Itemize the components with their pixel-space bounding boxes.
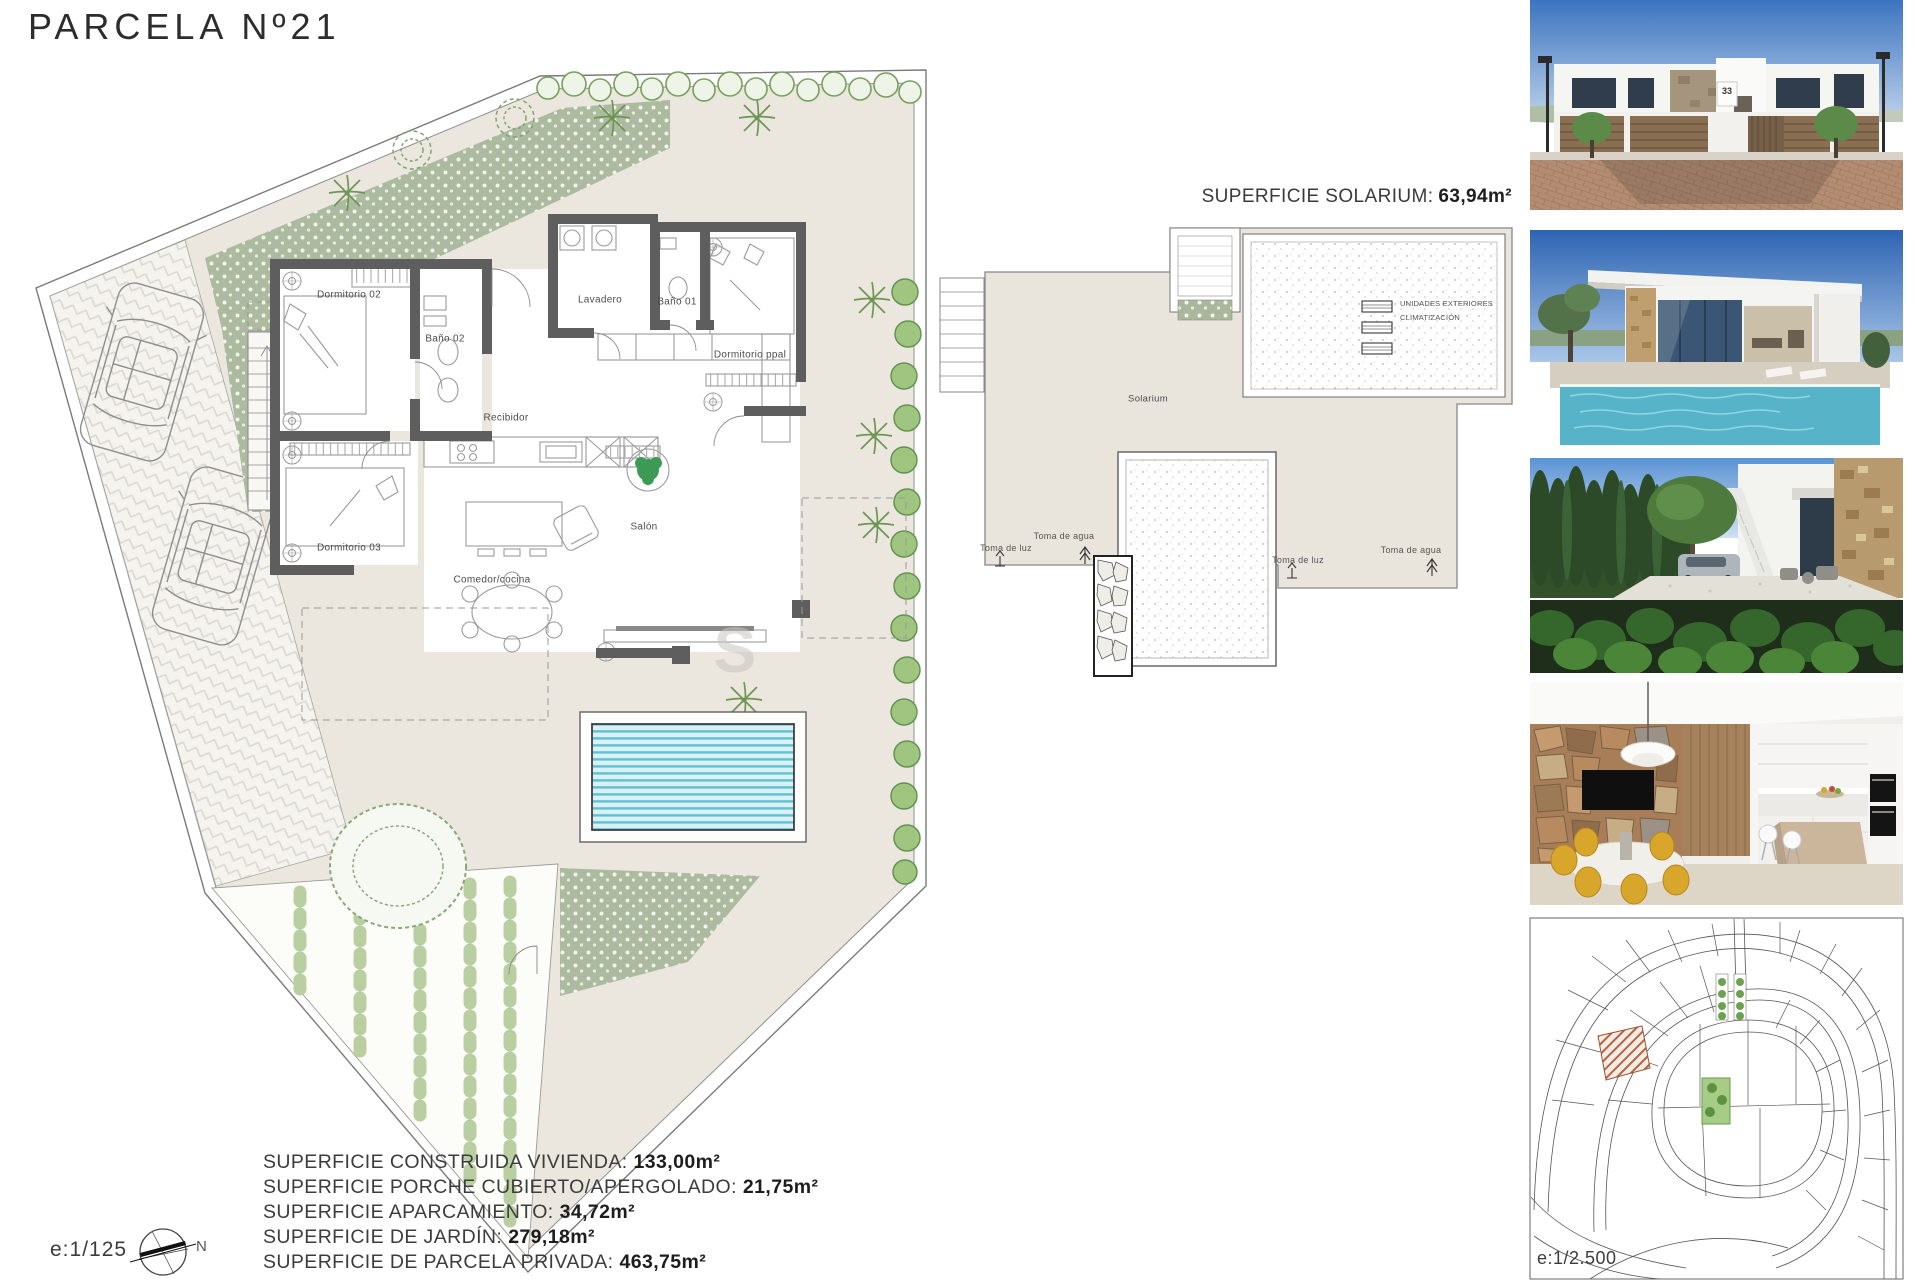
surface-row: SUPERFICIE CONSTRUIDA VIVIENDA:133,00m² [263,1150,818,1175]
solarium-area-value: 63,94m² [1438,186,1512,207]
room-label-dormitorio02: Dormitorio 02 [317,290,381,301]
room-label-dormitorio-ppal: Dormitorio ppal [714,350,786,361]
surface-row: SUPERFICIE PORCHE CUBIERTO/APERGOLADO:21… [263,1175,818,1200]
solarium-stairs [1170,228,1240,320]
solarium-area-heading: SUPERFICIE SOLARIUM:63,94m² [1150,186,1512,208]
solarium-label: Solarium [1128,394,1168,405]
room-label-salon: Salón [630,522,657,533]
room-label-recibidor: Recibidor [484,413,529,424]
solarium-plan [940,228,1512,676]
room-label-comedor-cocina: Comedor/cocina [453,575,530,586]
house-number: 33 [1722,86,1732,96]
ac-units-label-line2: CLIMATIZACIÓN [1400,313,1460,322]
stone-strip [1094,556,1132,676]
room-label-dormitorio03: Dormitorio 03 [317,543,381,554]
plan-scale-label: e:1/125 [50,1238,127,1262]
surface-summary: SUPERFICIE CONSTRUIDA VIVIENDA:133,00m² … [263,1150,818,1275]
photo-garden-driveway [1530,458,1903,673]
toma-luz-right-label: Toma de luz [1272,555,1324,565]
room-label-bano02: Baño 02 [425,334,464,345]
watermark: S [714,613,757,687]
photo-interior-kitchen [1530,682,1903,905]
toma-agua-right-label: Toma de agua [1381,545,1442,555]
photo-street-view: 33 [1530,0,1903,210]
ac-units [1362,301,1392,354]
solarium-access-stairs [940,278,984,392]
room-label-bano01: Baño 01 [657,297,696,308]
site-plan-scale-label: e:1/2.500 [1537,1248,1617,1269]
compass [130,1229,196,1275]
north-label: N [196,1238,207,1255]
page-title: PARCELA Nº21 [28,6,341,48]
toma-luz-left-label: Toma de luz [980,543,1032,553]
solarium-panel [1118,452,1276,666]
solarium-area-label: SUPERFICIE SOLARIUM: [1202,186,1434,207]
surface-row: SUPERFICIE DE PARCELA PRIVADA:463,75m² [263,1250,818,1275]
photo-villa-pool [1530,230,1903,445]
room-label-lavadero: Lavadero [578,295,622,306]
surface-row: SUPERFICIE APARCAMIENTO:34,72m² [263,1200,818,1225]
plan-sheet: PARCELA Nº21 Dormitorio 02 Baño 02 Lavad… [0,0,1920,1280]
ac-units-label-line1: UNIDADES EXTERIORES [1400,299,1493,308]
surface-row: SUPERFICIE DE JARDÍN:279,18m² [263,1225,818,1250]
toma-agua-left-label: Toma de agua [1034,531,1095,541]
pool [580,712,806,842]
site-plan [1530,918,1903,1279]
